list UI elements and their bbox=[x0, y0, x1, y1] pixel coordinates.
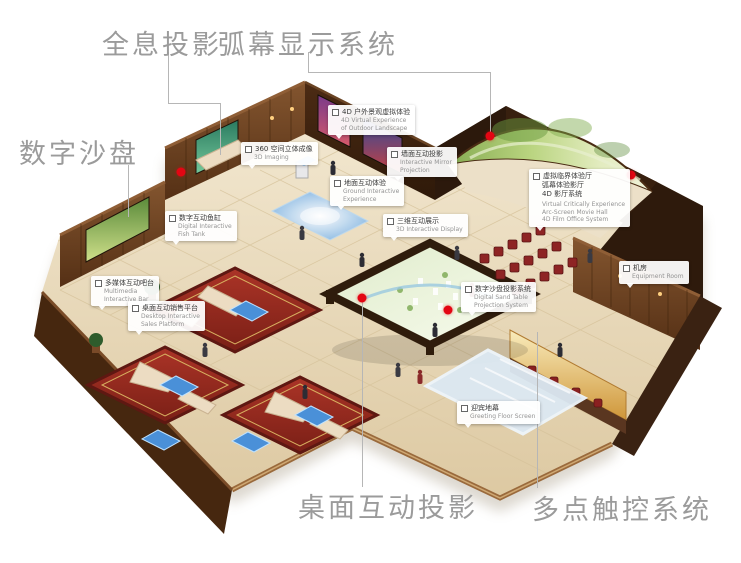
checkbox-icon bbox=[332, 109, 339, 116]
callout-title: 数字沙盘投影系统 bbox=[465, 285, 531, 294]
callout-floor-screen: 迎宾地幕 Greeting Floor Screen bbox=[457, 401, 540, 424]
callout-dome-hall: 虚拟临界体验厅 弧幕体验影厅 4D 影厅系统 Virtual Criticall… bbox=[529, 169, 630, 227]
checkbox-icon bbox=[387, 218, 394, 225]
checkbox-icon bbox=[461, 405, 468, 412]
callout-title: 虚拟临界体验厅 bbox=[533, 172, 625, 181]
callout-title: 迎宾地幕 bbox=[461, 404, 535, 413]
callout-title: 4D 户外景观虚拟体验 bbox=[332, 108, 410, 117]
callout-fish-tank: 数字互动鱼缸 Digital Interactive Fish Tank bbox=[165, 211, 237, 241]
callout-4d-outdoor: 4D 户外景观虚拟体验 4D Virtual Experience of Out… bbox=[328, 105, 415, 135]
checkbox-icon bbox=[245, 146, 252, 153]
leader-line-sand-table bbox=[128, 165, 129, 217]
leader-line-holographic bbox=[168, 103, 220, 104]
callout-wall-projection: 墙面互动投影 Interactive Mirror Projection bbox=[387, 147, 457, 177]
callout-title: 数字互动鱼缸 bbox=[169, 214, 232, 223]
leader-line-arc-screen bbox=[490, 72, 491, 136]
callout-title: 机房 bbox=[623, 264, 684, 273]
exhibition-hall-infographic: 全息投影 弧幕显示系统 数字沙盘 桌面互动投影 多点触控系统 360 空间立体成… bbox=[0, 0, 741, 563]
checkbox-icon bbox=[132, 305, 139, 312]
callout-ground-interactive: 地面互动体验 Ground Interactive Experience bbox=[330, 176, 404, 206]
callout-equipment-room: 机房 Equipment Room bbox=[619, 261, 689, 284]
leader-line-desktop bbox=[362, 299, 363, 487]
checkbox-icon bbox=[391, 151, 398, 158]
marker-dot-dome bbox=[486, 132, 495, 141]
marker-dot-desktop bbox=[358, 294, 367, 303]
callout-title: 墙面互动投影 bbox=[391, 150, 452, 159]
callout-title: 桌面互动销售平台 bbox=[132, 304, 200, 313]
leader-line-arc-screen bbox=[308, 72, 490, 73]
callout-sand-projection: 数字沙盘投影系统 Digital Sand Table Projection S… bbox=[461, 282, 536, 312]
callout-title: 360 空间立体成像 bbox=[245, 145, 313, 154]
callout-title: 多媒体互动吧台 bbox=[95, 279, 154, 288]
checkbox-icon bbox=[169, 215, 176, 222]
checkbox-icon bbox=[465, 286, 472, 293]
callout-3d-display: 三维互动展示 3D Interactive Display bbox=[383, 214, 468, 237]
checkbox-icon bbox=[533, 173, 540, 180]
leader-line-holographic bbox=[220, 103, 221, 155]
callout-title: 三维互动展示 bbox=[387, 217, 463, 226]
label-multi-touch-system: 多点触控系统 bbox=[532, 488, 712, 527]
marker-dot-holographic bbox=[177, 168, 186, 177]
checkbox-icon bbox=[95, 280, 102, 287]
checkbox-icon bbox=[334, 180, 341, 187]
label-desktop-projection: 桌面互动投影 bbox=[298, 486, 478, 525]
marker-dot-sand-table bbox=[444, 306, 453, 315]
callout-title: 地面互动体验 bbox=[334, 179, 399, 188]
checkbox-icon bbox=[623, 265, 630, 272]
label-arc-screen-system: 弧幕显示系统 bbox=[218, 23, 398, 62]
callout-360-imaging: 360 空间立体成像 3D Imaging bbox=[241, 142, 318, 165]
callout-desktop-sales: 桌面互动销售平台 Desktop Interactive Sales Platf… bbox=[128, 301, 205, 331]
label-holographic-projection: 全息投影 bbox=[102, 23, 222, 62]
label-digital-sand-table: 数字沙盘 bbox=[19, 132, 139, 171]
